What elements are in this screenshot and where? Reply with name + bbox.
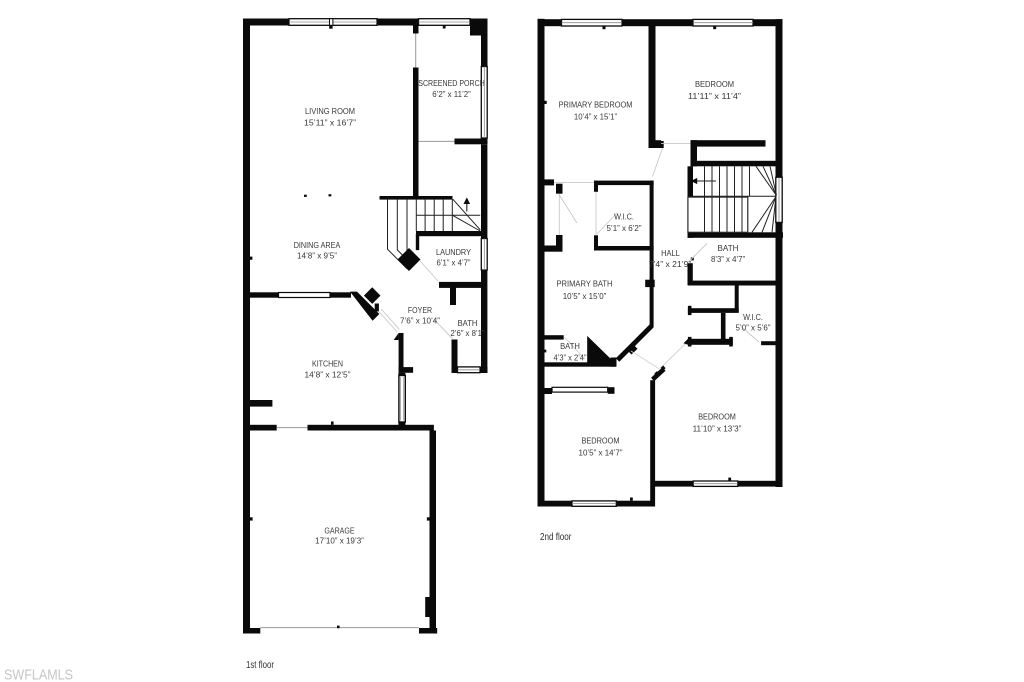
svg-text:11’11” x 11’4”: 11’11” x 11’4”	[688, 91, 741, 101]
svg-text:1st floor: 1st floor	[246, 660, 275, 671]
svg-text:SCREENED PORCH: SCREENED PORCH	[418, 78, 485, 88]
svg-text:8’3” x 4’7”: 8’3” x 4’7”	[711, 254, 745, 264]
svg-text:10’4” x 15’1”: 10’4” x 15’1”	[574, 111, 617, 121]
svg-text:SWFLAMLS: SWFLAMLS	[4, 668, 73, 682]
svg-text:5’0” x 5’6”: 5’0” x 5’6”	[736, 323, 771, 333]
svg-text:14’8” x 9’5”: 14’8” x 9’5”	[297, 250, 337, 260]
svg-text:GARAGE: GARAGE	[324, 525, 355, 535]
svg-text:FOYER: FOYER	[408, 305, 432, 315]
svg-text:W.I.C.: W.I.C.	[743, 312, 763, 322]
svg-text:2nd floor: 2nd floor	[540, 532, 572, 543]
svg-text:7’4” x 21’9”: 7’4” x 21’9”	[649, 259, 692, 269]
svg-text:11’10” x 13’3”: 11’10” x 13’3”	[693, 423, 742, 433]
svg-text:BATH: BATH	[560, 341, 580, 351]
svg-text:HALL: HALL	[661, 248, 680, 258]
svg-text:4’3” x 2’4”: 4’3” x 2’4”	[554, 353, 587, 363]
svg-text:10’5” x 15’0”: 10’5” x 15’0”	[563, 291, 607, 301]
svg-text:BEDROOM: BEDROOM	[695, 79, 734, 89]
svg-text:BATH: BATH	[718, 243, 739, 253]
svg-text:PRIMARY BEDROOM: PRIMARY BEDROOM	[559, 99, 633, 109]
svg-text:6’1” x 4’7”: 6’1” x 4’7”	[437, 257, 471, 267]
svg-text:LIVING ROOM: LIVING ROOM	[305, 106, 355, 116]
svg-text:2’6” x 8’1”: 2’6” x 8’1”	[451, 328, 485, 338]
svg-text:10’5” x 14’7”: 10’5” x 14’7”	[579, 448, 623, 458]
svg-text:17’10” x 19’3”: 17’10” x 19’3”	[315, 536, 364, 546]
svg-text:W.I.C.: W.I.C.	[614, 211, 634, 221]
svg-text:15’11” x 16’7”: 15’11” x 16’7”	[304, 118, 356, 128]
svg-text:5’1” x 6’2”: 5’1” x 6’2”	[607, 223, 642, 233]
svg-text:BATH: BATH	[458, 318, 478, 328]
svg-text:7’6” x 10’4”: 7’6” x 10’4”	[400, 315, 440, 325]
svg-text:BEDROOM: BEDROOM	[698, 412, 736, 422]
svg-text:14’8” x 12’5”: 14’8” x 12’5”	[305, 370, 351, 380]
svg-text:DINING AREA: DINING AREA	[294, 240, 341, 250]
svg-text:LAUNDRY: LAUNDRY	[436, 247, 471, 257]
svg-text:BEDROOM: BEDROOM	[581, 435, 619, 445]
svg-text:6’2” x 11’2”: 6’2” x 11’2”	[432, 89, 471, 99]
svg-text:KITCHEN: KITCHEN	[312, 358, 343, 368]
svg-text:PRIMARY BATH: PRIMARY BATH	[556, 279, 612, 289]
